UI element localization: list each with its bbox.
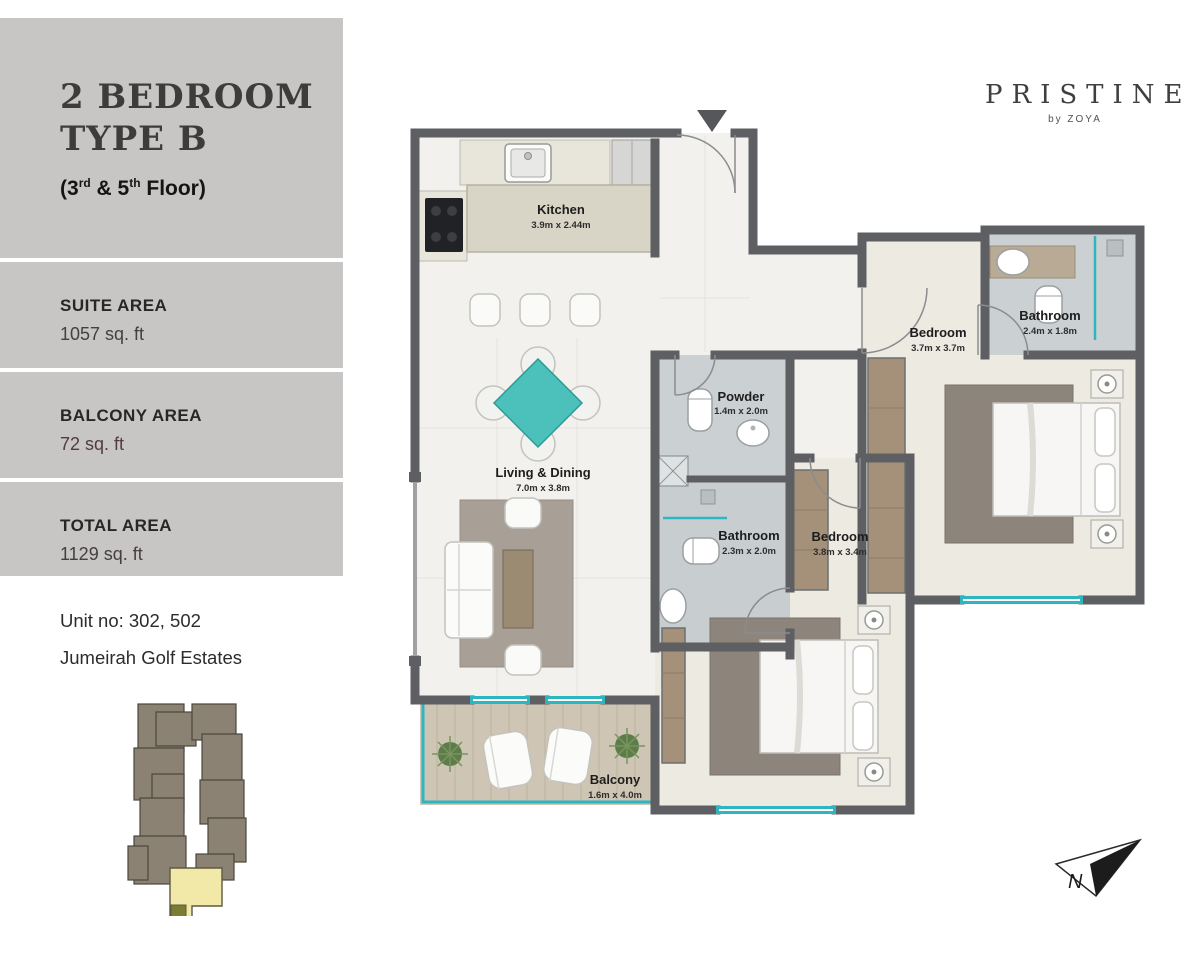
kitchen-label: Kitchen: [537, 202, 585, 217]
stove: [425, 198, 463, 252]
bedroom1-furniture: [710, 606, 890, 786]
bathroom1-dims: 2.3m x 2.0m: [722, 546, 776, 557]
living-label: Living & Dining: [495, 465, 590, 480]
community-name: Jumeirah Golf Estates: [60, 639, 242, 676]
floorplan-page: 2 BEDROOM TYPE B (3rd & 5th Floor) SUITE…: [0, 0, 1200, 960]
living-set: [445, 498, 573, 675]
sink: [737, 420, 769, 446]
pillow: [853, 702, 873, 750]
key-plan-building: [128, 704, 246, 884]
coffee-table: [503, 550, 533, 628]
floor-note: (3rd & 5th Floor): [60, 176, 206, 201]
key-plan-highlight-unit: [170, 868, 222, 916]
plan-title-line2: TYPE B: [60, 118, 314, 160]
toilet: [688, 389, 712, 431]
suite-area-panel: SUITE AREA 1057 sq. ft: [0, 262, 343, 368]
toilet: [683, 538, 719, 564]
bathroom2-dims: 2.4m x 1.8m: [1023, 326, 1077, 337]
bathroom2-label: Bathroom: [1019, 308, 1080, 323]
bedroom2-furniture: [945, 370, 1123, 548]
kitchen-dims: 3.9m x 2.44m: [531, 220, 590, 231]
brand-name: PRISTINE: [985, 80, 1174, 110]
north-letter: N: [1068, 871, 1083, 893]
floor-plan: Kitchen 3.9m x 2.44m Living & Dining 7.0…: [405, 108, 1150, 818]
balcony-area-value: 72 sq. ft: [60, 434, 124, 455]
balcony-area-panel: BALCONY AREA 72 sq. ft: [0, 372, 343, 478]
total-area-panel: TOTAL AREA 1129 sq. ft: [0, 482, 343, 576]
north-arrow-icon: N: [1042, 830, 1172, 925]
total-area-value: 1129 sq. ft: [60, 544, 143, 565]
sink: [997, 249, 1029, 275]
armchair: [505, 498, 541, 528]
pillow: [1095, 464, 1115, 512]
suite-area-value: 1057 sq. ft: [60, 324, 144, 345]
pillow: [1095, 408, 1115, 456]
balcony-label: Balcony: [590, 772, 641, 787]
unit-number: Unit no: 302, 502: [60, 602, 242, 639]
kitchen-island: [467, 185, 655, 252]
balcony-area-label: BALCONY AREA: [60, 406, 202, 426]
balcony-dims: 1.6m x 4.0m: [588, 790, 642, 801]
bedroom1-label: Bedroom: [811, 529, 868, 544]
pillow: [853, 646, 873, 694]
living-dims: 7.0m x 3.8m: [516, 483, 570, 494]
suite-area-label: SUITE AREA: [60, 296, 167, 316]
plan-title-line1: 2 BEDROOM: [60, 76, 314, 118]
entrance-arrow-icon: [697, 110, 727, 132]
armchair: [505, 645, 541, 675]
total-area-label: TOTAL AREA: [60, 516, 172, 536]
title-panel: 2 BEDROOM TYPE B (3rd & 5th Floor): [0, 18, 343, 258]
plan-title: 2 BEDROOM TYPE B: [60, 76, 314, 160]
shower-head: [701, 490, 715, 504]
unit-info: Unit no: 302, 502 Jumeirah Golf Estates: [60, 602, 242, 676]
key-plan: [100, 686, 290, 916]
powder-dims: 1.4m x 2.0m: [714, 406, 768, 417]
bedroom2-label: Bedroom: [909, 325, 966, 340]
shower-head: [1107, 240, 1123, 256]
bedroom2-dims: 3.7m x 3.7m: [911, 343, 965, 354]
bedroom1-dims: 3.8m x 3.4m: [813, 547, 867, 558]
powder-label: Powder: [718, 389, 765, 404]
bathroom1-label: Bathroom: [718, 528, 779, 543]
sink: [660, 589, 686, 623]
